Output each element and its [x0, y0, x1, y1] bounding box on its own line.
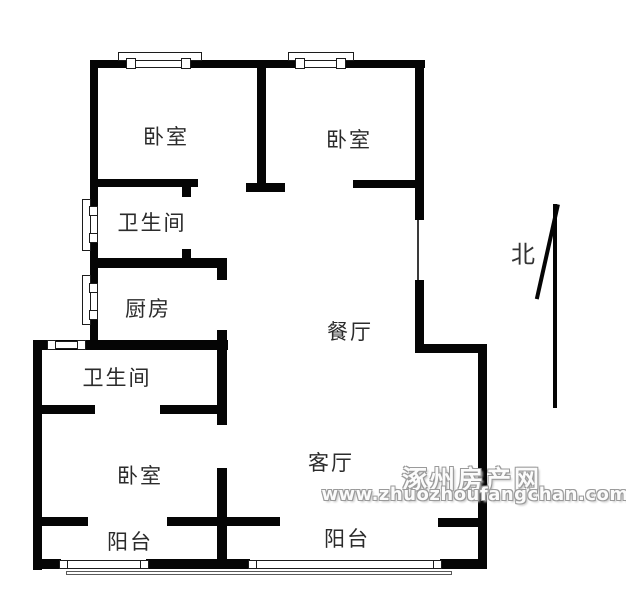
wall-segment — [33, 405, 95, 414]
room-label-bathroom-lower: 卫生间 — [83, 362, 152, 392]
wall-segment — [440, 559, 487, 569]
bedroom1-window-pane — [135, 60, 183, 68]
room-label-dining-room: 餐厅 — [327, 316, 373, 346]
wall-segment — [182, 187, 191, 197]
wall-segment — [33, 517, 88, 526]
wall-segment — [217, 268, 227, 280]
kitchen-window-cap — [89, 283, 98, 293]
room-label-kitchen: 厨房 — [125, 293, 171, 323]
wall-segment — [415, 60, 424, 220]
wall-segment — [478, 344, 487, 569]
door-leaf-line — [417, 220, 419, 280]
bathroom-lower-window-cap — [47, 340, 56, 350]
wall-segment — [160, 405, 227, 414]
room-label-balcony-left: 阳台 — [107, 526, 153, 556]
wall-segment — [415, 344, 487, 353]
room-label-bedroom-top-left: 卧室 — [143, 121, 189, 151]
room-label-bedroom-top-right: 卧室 — [326, 124, 372, 154]
bedroom1-window-cap — [181, 58, 191, 69]
wall-segment — [438, 518, 478, 527]
balcony-right-window-pane — [248, 560, 442, 569]
room-label-bathroom-upper: 卫生间 — [118, 207, 187, 237]
balcony-left-window-pane — [59, 560, 149, 569]
bedroom2-window-pane — [304, 60, 338, 68]
wall-segment — [182, 249, 191, 258]
bedroom2-window-cap — [295, 58, 305, 69]
wall-segment — [246, 183, 285, 192]
wall-segment — [257, 60, 266, 184]
wall-segment — [415, 280, 424, 353]
wall-segment — [353, 180, 422, 188]
room-label-balcony-right: 阳台 — [324, 523, 370, 553]
bathroom-upper-window-cap — [89, 233, 98, 243]
wall-segment — [33, 559, 61, 569]
wall-segment — [146, 559, 250, 569]
north-arrow-shaft — [553, 204, 557, 408]
floorplan: 北 涿州房产网 www.zhuozhoufangchan.com 卧室卧室卫生间… — [0, 0, 626, 600]
wall-segment — [92, 179, 198, 187]
kitchen-window-cap — [89, 310, 98, 320]
room-label-bedroom-bottom: 卧室 — [117, 460, 163, 490]
balcony-left-window-cap — [140, 560, 149, 569]
north-label: 北 — [511, 235, 535, 270]
bathroom-upper-window-cap — [89, 206, 98, 216]
room-label-living-room: 客厅 — [308, 447, 354, 477]
balcony-right-window-cap — [248, 560, 257, 569]
balcony-left-window-cap — [59, 560, 68, 569]
balcony-outer-edge — [66, 571, 452, 575]
wall-segment — [167, 517, 280, 526]
bathroom-lower-window-cap — [77, 340, 86, 350]
wall-segment — [33, 340, 42, 570]
bedroom2-window-cap — [336, 58, 346, 69]
bedroom1-window-cap — [126, 58, 136, 69]
balcony-right-window-cap — [433, 560, 442, 569]
wall-segment — [98, 258, 227, 268]
watermark-site-url: www.zhuozhoufangchan.com — [321, 484, 626, 505]
